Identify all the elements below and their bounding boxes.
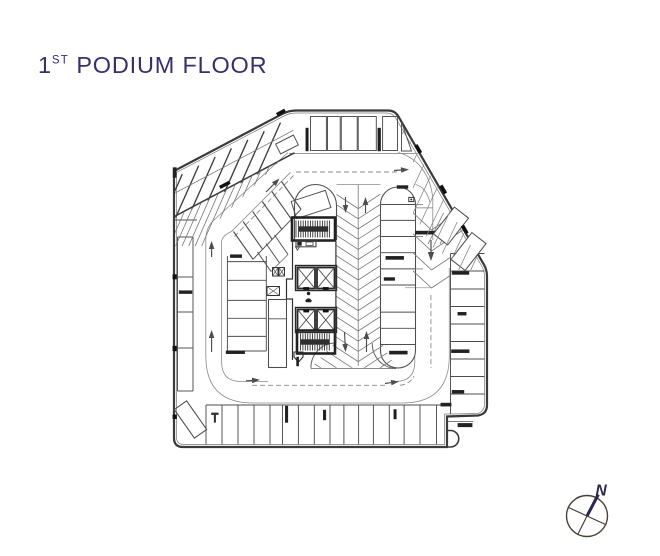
svg-text:N: N xyxy=(596,483,608,500)
